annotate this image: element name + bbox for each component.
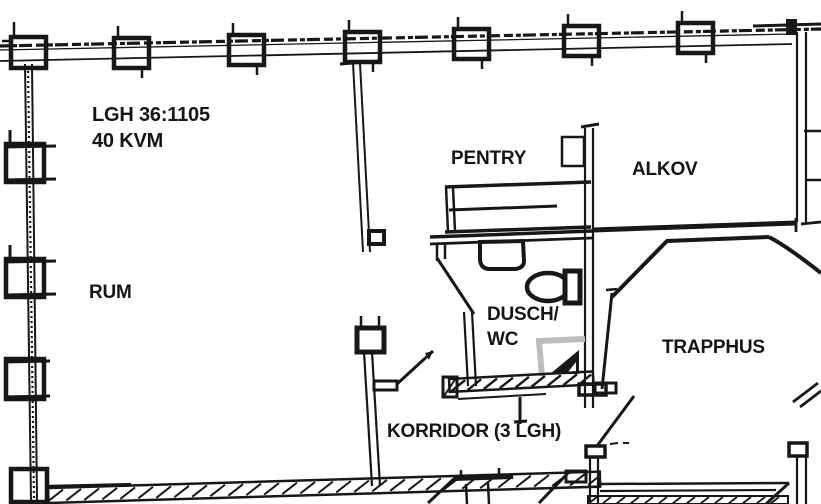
right-wall — [753, 19, 821, 232]
wc-door — [437, 258, 474, 314]
room-label-pentry: PENTRY — [451, 146, 526, 171]
trapphus-boundary — [595, 237, 821, 393]
room-label-rum: RUM — [89, 280, 132, 305]
wc-left-wall — [464, 312, 476, 386]
pentry-cupboard — [562, 137, 584, 166]
bottom-right-wall — [789, 383, 821, 504]
room-label-alkov: ALKOV — [632, 157, 698, 182]
top-wall — [0, 29, 821, 61]
entrance-pillar — [357, 316, 384, 486]
left-wall — [4, 64, 56, 502]
bottom-wall-right — [588, 483, 789, 504]
apartment-title: LGH 36:1105 40 KVM — [92, 102, 210, 154]
pentry-wc-wall — [430, 231, 592, 261]
alkov-bottom-wall — [593, 223, 796, 230]
washbasin — [480, 241, 524, 269]
toilet — [527, 271, 580, 303]
room-label-korridor: KORRIDOR (3 LGH) — [387, 419, 561, 444]
floorplan-page: LGH 36:1105 40 KVM PENTRY ALKOV RUM DUSC… — [0, 0, 821, 504]
room-label-wc: WC — [487, 327, 559, 352]
apartment-id: LGH 36:1105 — [92, 102, 210, 128]
room-label-dusch: DUSCH/ — [487, 302, 559, 327]
apartment-area: 40 KVM — [92, 128, 210, 154]
room-label-trapphus: TRAPPHUS — [662, 335, 765, 360]
mid-wall-upper — [340, 61, 384, 252]
entrance-door — [374, 351, 433, 390]
room-label-dusch-wc: DUSCH/ WC — [487, 302, 559, 352]
wc-bottom-wall — [443, 371, 593, 424]
floor-drain-triangle — [550, 350, 579, 374]
pentry-counter — [445, 182, 591, 232]
bottom-wall-left — [46, 472, 600, 503]
